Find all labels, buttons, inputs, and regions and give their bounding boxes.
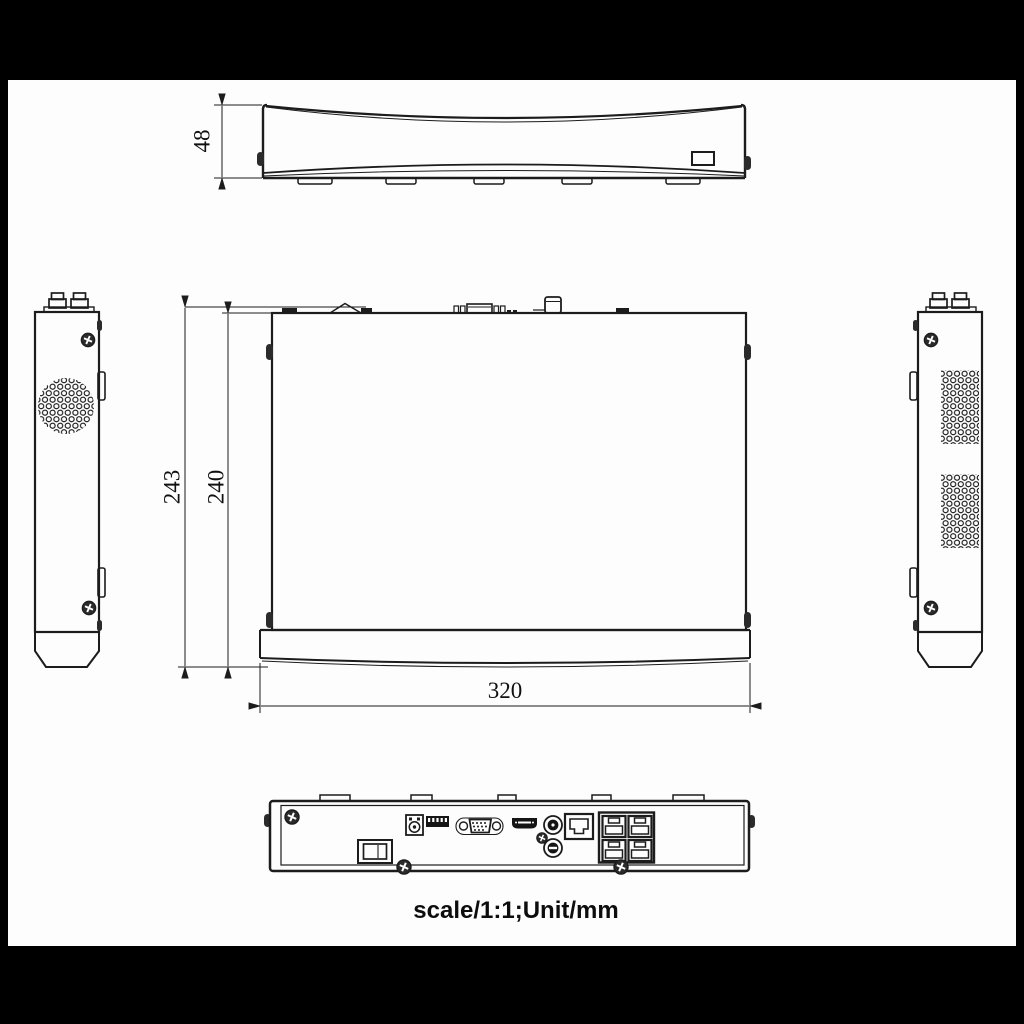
edge-screw-bump <box>744 344 751 360</box>
edge-screw-bump <box>266 612 273 628</box>
hdmi-port <box>512 818 537 829</box>
dim-label-320: 320 <box>488 678 523 703</box>
screw-icon <box>82 601 95 614</box>
drawing-paper <box>8 80 1016 946</box>
letterbox-background: { "caption": "scale/1:1;Unit/mm", "dims"… <box>0 0 1024 1024</box>
edge-nub <box>913 320 918 331</box>
vent-grid-upper <box>941 370 979 444</box>
screw-icon <box>924 601 937 614</box>
screw-icon <box>614 860 628 874</box>
dim-label-240: 240 <box>203 470 228 505</box>
terminal-block <box>426 816 449 827</box>
edge-screw-bump <box>744 612 751 628</box>
dim-label-243: 243 <box>159 470 184 505</box>
screw-icon <box>285 810 299 824</box>
edge-nub <box>97 320 102 331</box>
edge-nub <box>913 620 918 631</box>
screw-icon <box>924 333 937 346</box>
dimensional-drawing: 48 <box>0 0 1024 1024</box>
round-vent-grille <box>38 378 94 434</box>
screw-icon <box>397 860 411 874</box>
side-screw-bump-right <box>744 156 751 170</box>
side-screw-bump-left <box>257 152 264 166</box>
screw-icon <box>81 333 94 346</box>
edge-screw-bump <box>266 344 273 360</box>
vent-grid-lower <box>941 474 979 548</box>
edge-nub <box>97 620 102 631</box>
dim-label-48: 48 <box>189 130 214 153</box>
scale-caption: scale/1:1;Unit/mm <box>413 897 618 924</box>
